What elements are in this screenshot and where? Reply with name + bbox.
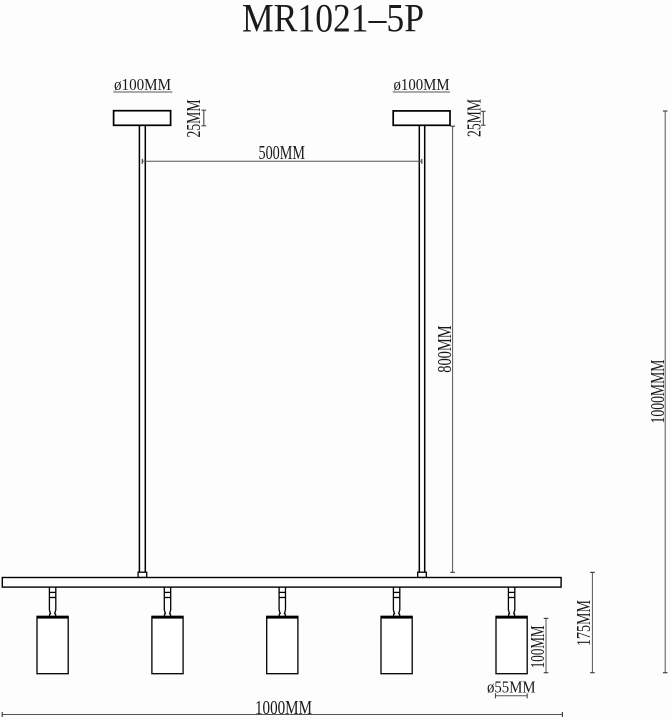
- svg-text:ø55MM: ø55MM: [487, 678, 536, 697]
- svg-text:1000MM: 1000MM: [255, 697, 312, 719]
- svg-text:1000MMM: 1000MMM: [647, 359, 669, 423]
- svg-text:25MM: 25MM: [183, 99, 205, 137]
- svg-text:25MM: 25MM: [464, 99, 486, 137]
- svg-text:ø100MM: ø100MM: [114, 75, 171, 94]
- svg-text:ø100MM: ø100MM: [394, 75, 450, 94]
- svg-text:MR1021–5P: MR1021–5P: [242, 0, 424, 41]
- svg-text:500MM: 500MM: [259, 142, 306, 164]
